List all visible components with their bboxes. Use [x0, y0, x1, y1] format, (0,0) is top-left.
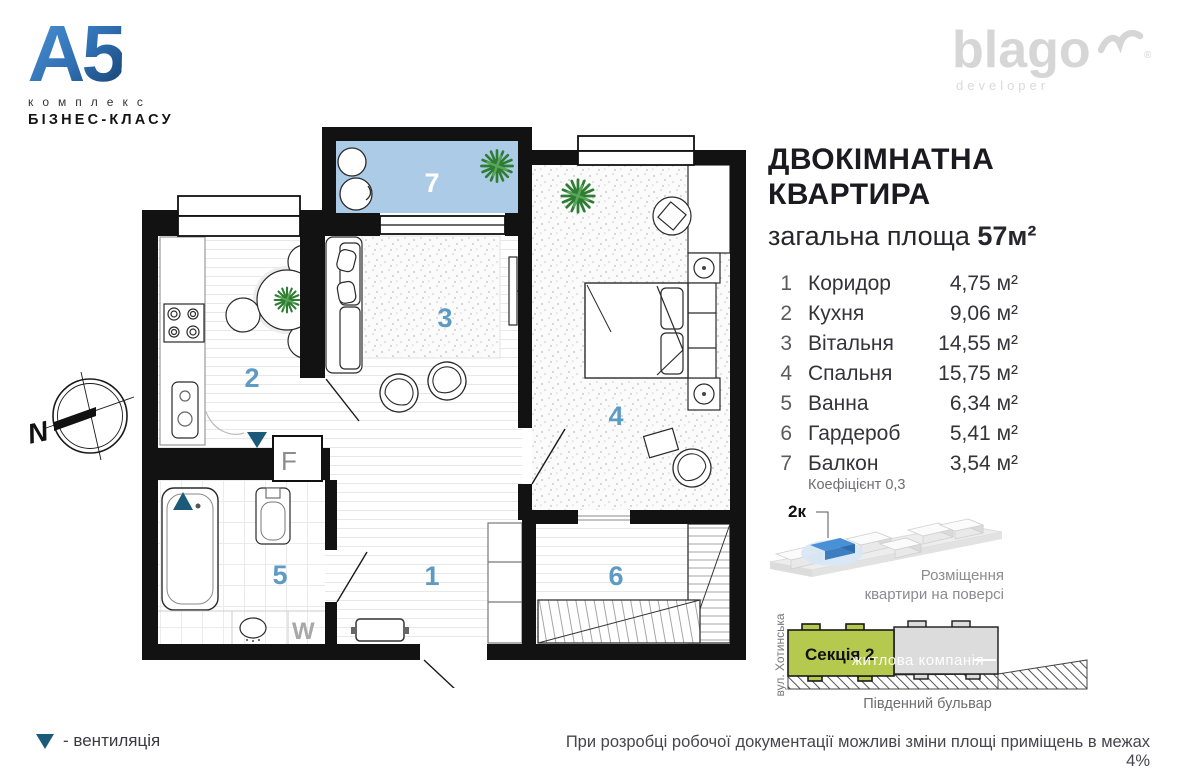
coefficient-note: Коефіцієнт 0,3 [808, 477, 906, 493]
headboard [688, 283, 716, 378]
room-row: 6 Гардероб 5,41 м² [768, 419, 1018, 449]
closet [488, 523, 522, 643]
room-row: 3 Вітальня 14,55 м² [768, 329, 1018, 359]
street-bottom-label: Південний бульвар [830, 696, 1025, 712]
room-number-kitchen: 2 [244, 363, 259, 393]
room-row-area: 3,54 м² [950, 452, 1018, 476]
vent-legend-label: - вентиляція [63, 731, 160, 751]
sofa-pillow [336, 281, 356, 305]
kitchen-window [178, 196, 300, 216]
room-row: 5 Ванна 6,34 м² [768, 389, 1018, 419]
desk-chair [653, 197, 691, 235]
room-row-name: Спальня [808, 362, 922, 386]
room-row-name: Кухня [808, 302, 934, 326]
kitchen-sink [172, 382, 198, 438]
room-row-area: 14,55 м² [938, 332, 1018, 356]
a5-logo: А5 комплекс БІЗНЕС-КЛАСУ [28, 14, 218, 128]
room-number-wardrobe: 6 [608, 561, 623, 591]
room-number-bathroom: 5 [272, 560, 287, 590]
room-row-name: Гардероб [808, 422, 934, 446]
washer-slot-label: W [292, 618, 315, 645]
vent-legend: - вентиляція [36, 731, 160, 751]
blago-developer-label: developer [956, 78, 1162, 93]
faucet [266, 488, 280, 498]
blago-bird-icon [1098, 26, 1144, 56]
room-row-num: 7 [768, 452, 792, 476]
floorplan-poster: А5 комплекс БІЗНЕС-КЛАСУ blago ® develop… [0, 0, 1180, 780]
room-row-num: 1 [768, 272, 792, 296]
company-watermark: житлова компанія [852, 652, 984, 669]
tv [509, 257, 517, 325]
total-area-label: загальна площа [768, 221, 970, 251]
entry-door [424, 660, 472, 688]
room-row-area: 15,75 м² [938, 362, 1018, 386]
radiator [356, 619, 404, 641]
dining-chair [226, 298, 260, 332]
floor-plan: W [140, 124, 748, 688]
vent-triangle-icon [36, 734, 54, 749]
room-row-name: Ванна [808, 392, 934, 416]
room-row: 2 Кухня 9,06 м² [768, 299, 1018, 329]
title-line2: КВАРТИРА [768, 177, 1058, 212]
disclaimer-text: При розробці робочої документації можлив… [560, 733, 1150, 771]
fridge: F [273, 436, 322, 481]
title-line1: ДВОКІМНАТНА [768, 142, 1058, 177]
washbasin-bowl [261, 502, 285, 540]
room-list: 1 Коридор 4,75 м² 2 Кухня 9,06 м² 3 Віта… [768, 269, 1018, 479]
unit-leader-line [816, 512, 828, 538]
a5-logo-mark: А5 [27, 14, 123, 94]
sofa-cushion [340, 307, 360, 369]
caption-line1: Розміщення [846, 566, 1004, 585]
room-row-area: 6,34 м² [950, 392, 1018, 416]
apartment-title: ДВОКІМНАТНА КВАРТИРА загальна площа 57м² [768, 142, 1058, 252]
desk-cabinet [688, 165, 730, 253]
room-row-area: 4,75 м² [950, 272, 1018, 296]
floor-position-caption: Розміщення квартири на поверсі [846, 566, 1004, 604]
balcony-chair [340, 178, 372, 210]
bedroom-window [578, 136, 694, 151]
room-row-name: Коридор [808, 272, 934, 296]
room-row: 4 Спальня 15,75 м² [768, 359, 1018, 389]
bathtub-inner [167, 494, 213, 604]
balcony-chair [338, 148, 366, 176]
compass-needle [54, 407, 96, 431]
room-row-num: 3 [768, 332, 792, 356]
toilet [240, 618, 266, 638]
caption-line2: квартири на поверсі [846, 585, 1004, 604]
room-row-area: 9,06 м² [950, 302, 1018, 326]
room-row-num: 4 [768, 362, 792, 386]
ground-slope [998, 660, 1087, 689]
bathtub-drain [196, 504, 201, 509]
room-number-balcony: 7 [424, 168, 439, 198]
unit-label: 2к [788, 502, 806, 521]
blago-developer-logo: blago ® developer [952, 24, 1162, 93]
compass-north-label: N [28, 415, 52, 450]
room-number-living: 3 [437, 303, 452, 333]
room-row: 1 Коридор 4,75 м² [768, 269, 1018, 299]
section-other [894, 621, 998, 679]
bedroom-window [578, 151, 694, 165]
compass: N [28, 352, 158, 477]
living-rug [362, 236, 500, 358]
room-row-name: Вітальня [808, 332, 922, 356]
fridge-label: F [281, 446, 297, 476]
room-number-bedroom: 4 [608, 401, 623, 431]
room-row-area: 5,41 м² [950, 422, 1018, 446]
registered-mark-icon: ® [1144, 50, 1151, 61]
site-diagram: Секція 2 житлова компанія [762, 616, 1092, 708]
room-row-num: 6 [768, 422, 792, 446]
total-area-value: 57м² [977, 221, 1036, 251]
room-row-name: Балкон [808, 452, 934, 476]
room-row-num: 2 [768, 302, 792, 326]
room-number-corridor: 1 [424, 561, 439, 591]
street-side-label: вул. Хотинська [773, 613, 787, 697]
kitchen-window [178, 216, 300, 236]
room-row-num: 5 [768, 392, 792, 416]
room-row: 7 Балкон 3,54 м² [768, 449, 1018, 479]
